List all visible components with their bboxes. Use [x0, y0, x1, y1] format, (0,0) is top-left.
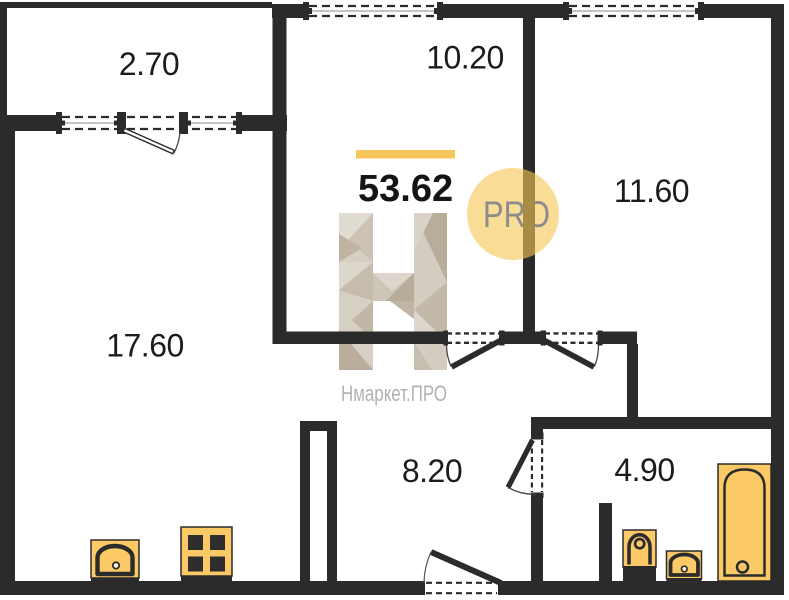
svg-text:8.20: 8.20 [402, 453, 462, 489]
svg-text:2.70: 2.70 [119, 46, 179, 82]
svg-text:PRO: PRO [483, 194, 550, 235]
svg-text:11.60: 11.60 [614, 173, 689, 209]
svg-text:10.20: 10.20 [426, 40, 504, 76]
svg-text:Нмаркет.ПРО: Нмаркет.ПРО [341, 381, 447, 406]
svg-text:4.90: 4.90 [614, 452, 674, 488]
svg-text:53.62: 53.62 [358, 168, 453, 210]
svg-text:17.60: 17.60 [106, 328, 184, 364]
